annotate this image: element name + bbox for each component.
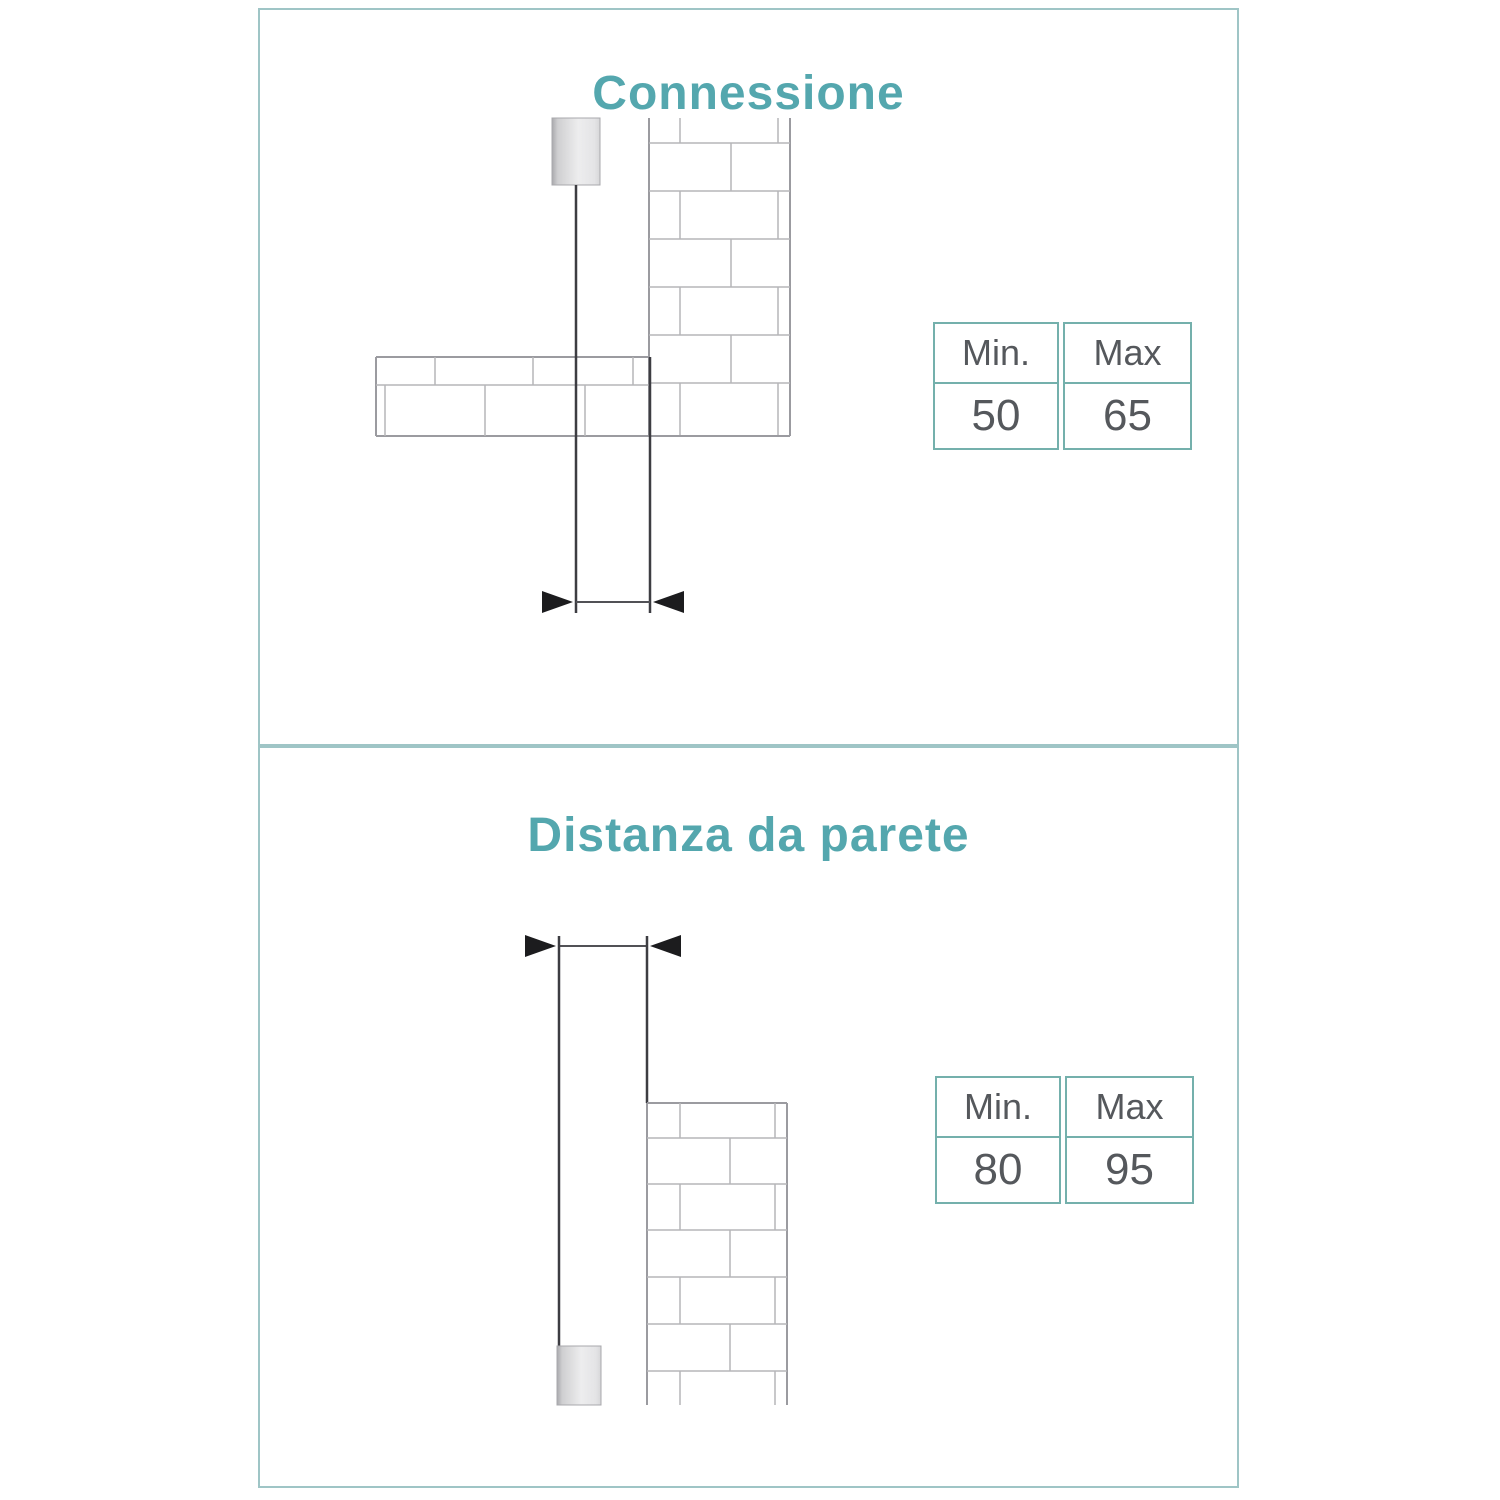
min-max-table: Min. 50 Max 65: [933, 322, 1192, 450]
wall-brick-vertical: [649, 118, 790, 436]
max-value-cell: 95: [1067, 1138, 1192, 1202]
spec-sheet: Connessione: [0, 0, 1500, 1500]
min-column: Min. 80: [935, 1076, 1061, 1204]
ceiling-beam-brick: [376, 357, 790, 436]
arrow-left-icon: [650, 935, 681, 957]
panel-distanza-da-parete: Distanza da parete: [258, 746, 1239, 1488]
arrow-left-icon: [653, 591, 684, 613]
dimension-arrows: [525, 935, 681, 957]
min-value-cell: 50: [935, 384, 1057, 448]
min-max-table: Min. 80 Max 95: [935, 1076, 1194, 1204]
pendant-cylinder-icon: [557, 1346, 601, 1405]
max-header-cell: Max: [1067, 1078, 1192, 1138]
min-header-cell: Min.: [937, 1078, 1059, 1138]
max-header-cell: Max: [1065, 324, 1190, 384]
arrow-right-icon: [542, 591, 573, 613]
max-column: Max 65: [1063, 322, 1192, 450]
pendant-canopy-icon: [552, 118, 600, 185]
arrow-right-icon: [525, 935, 556, 957]
min-header-cell: Min.: [935, 324, 1057, 384]
max-value-cell: 65: [1065, 384, 1190, 448]
min-value-cell: 80: [937, 1138, 1059, 1202]
wall-brick-vertical: [647, 1103, 787, 1405]
dimension-arrows: [542, 591, 684, 613]
max-column: Max 95: [1065, 1076, 1194, 1204]
panel-connessione: Connessione: [258, 8, 1239, 746]
min-column: Min. 50: [933, 322, 1059, 450]
